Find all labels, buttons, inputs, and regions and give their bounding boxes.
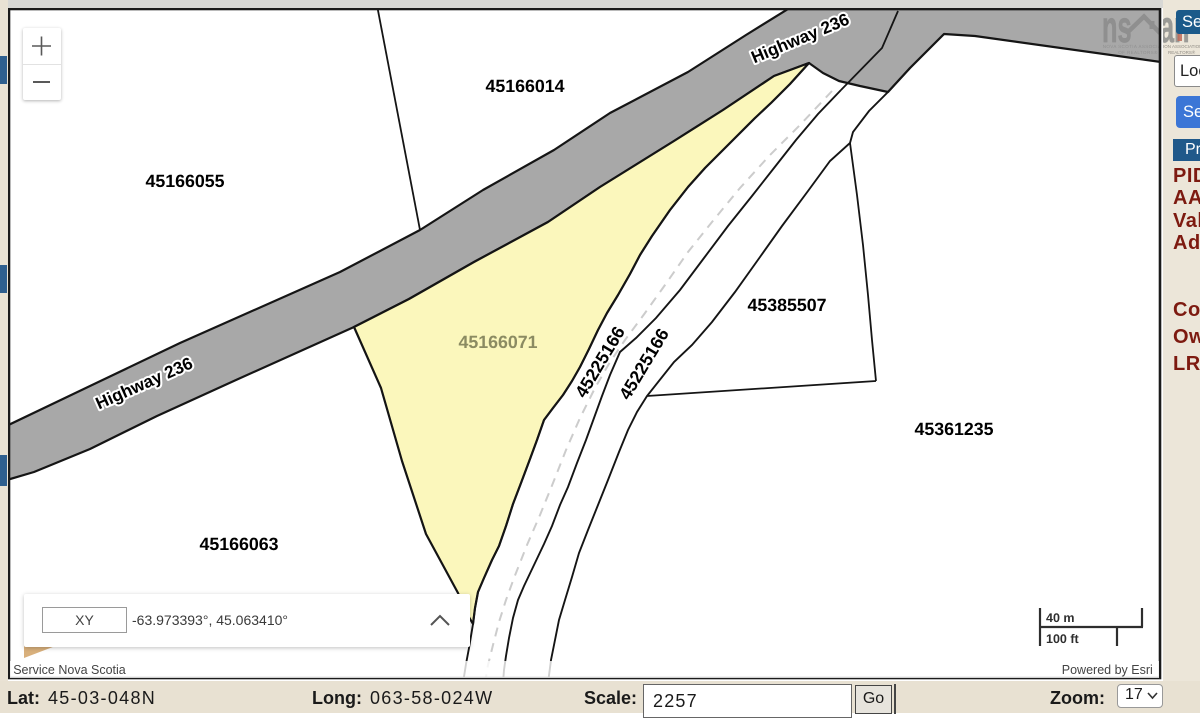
svg-text:ION ASSOCIATION: ION ASSOCIATION — [1163, 44, 1200, 49]
svg-text:45166071: 45166071 — [458, 332, 537, 352]
svg-text:45166014: 45166014 — [485, 76, 564, 96]
svg-text:45166063: 45166063 — [199, 534, 278, 554]
svg-text:45361235: 45361235 — [914, 419, 993, 439]
svg-text:45166055: 45166055 — [145, 171, 224, 191]
svg-text:OF REALTORS®: OF REALTORS® — [1118, 50, 1158, 55]
svg-text:100 ft: 100 ft — [1046, 632, 1079, 646]
svg-text:45385507: 45385507 — [747, 295, 826, 315]
svg-text:40 m: 40 m — [1046, 611, 1075, 625]
